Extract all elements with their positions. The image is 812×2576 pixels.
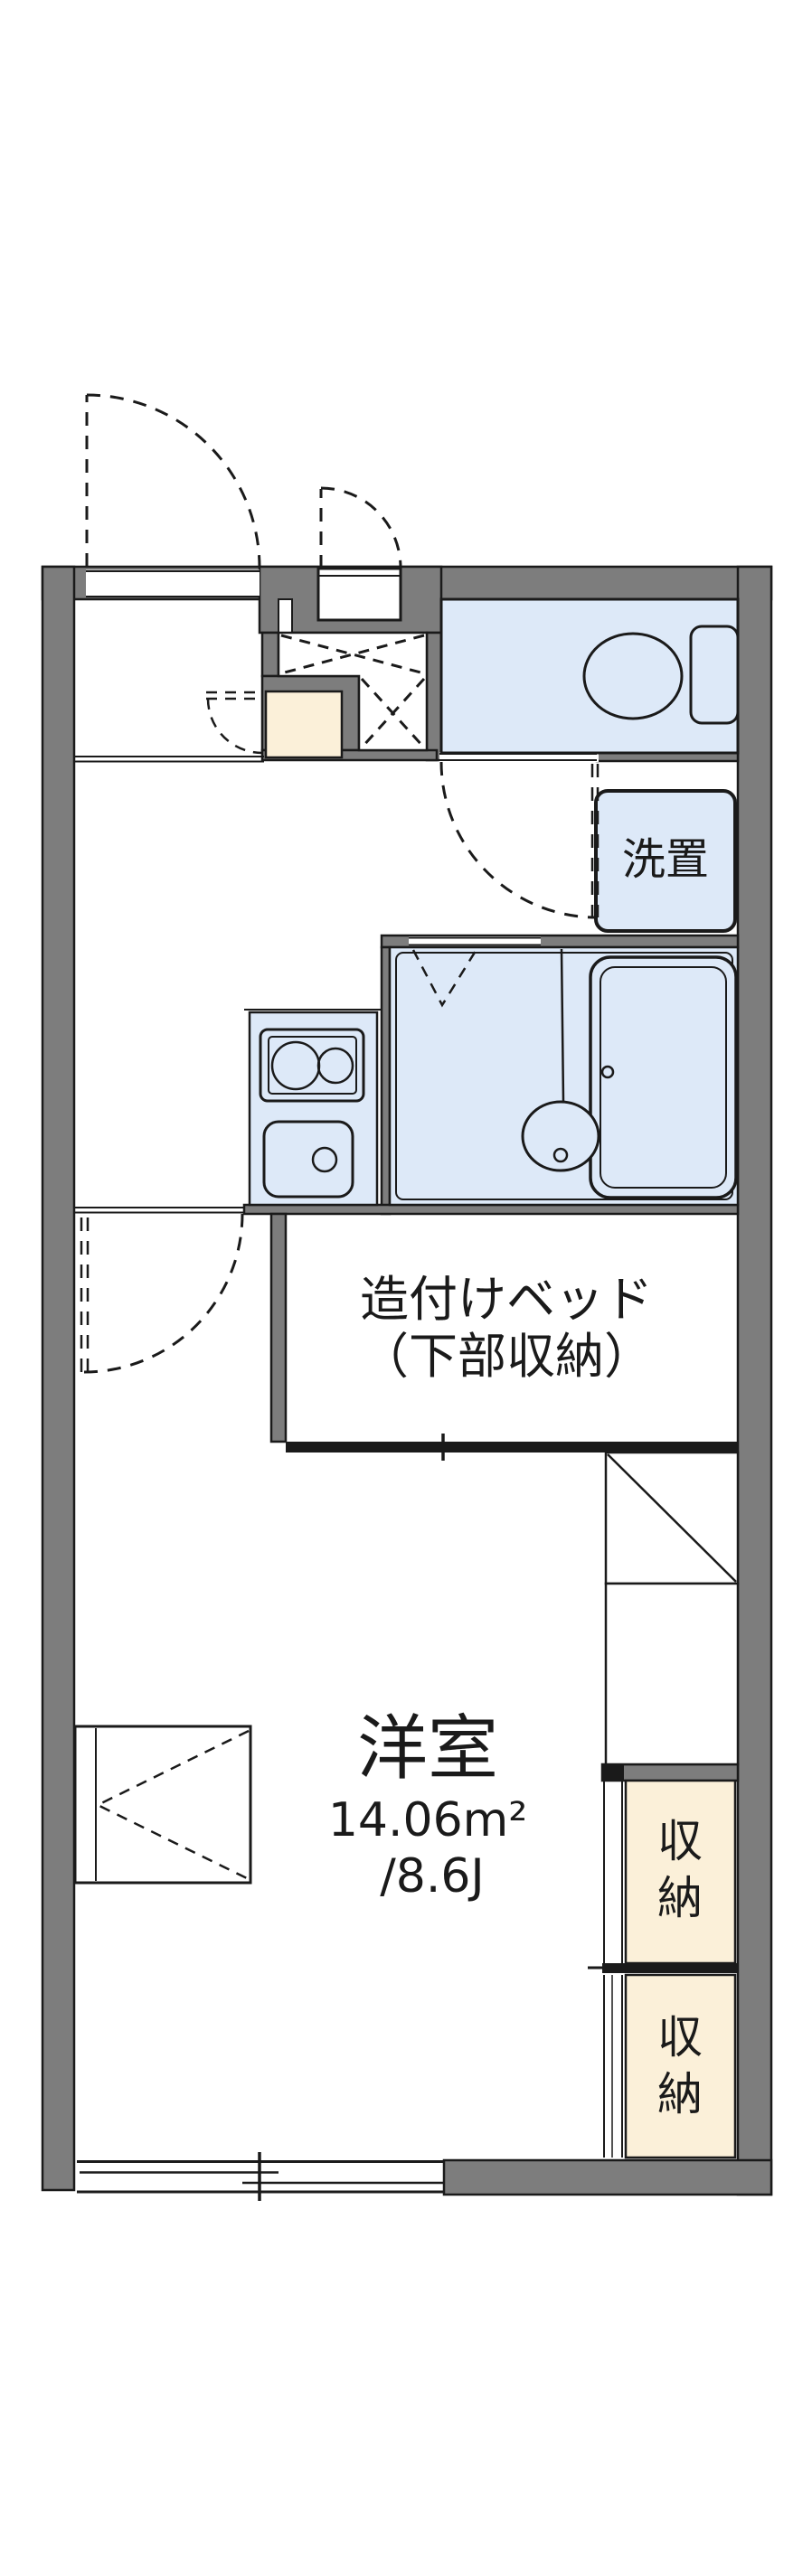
toilet-room <box>441 599 738 753</box>
wall-below-kitchen-bath <box>244 1205 738 1214</box>
door-swings <box>81 395 598 1372</box>
hall-small-door-arc <box>208 699 262 753</box>
storage-upper-label-2: 納 <box>657 1872 703 1924</box>
room-area-jo-label: /8.6J <box>380 1849 485 1904</box>
right-storage-column: 収 納 収 納 <box>588 1453 738 2158</box>
toilet-bowl <box>584 634 682 719</box>
wall-slot <box>279 599 292 634</box>
wall-genkan-left-strip <box>262 633 279 676</box>
bath-room <box>390 947 738 1205</box>
stove-unit <box>260 1029 364 1101</box>
room-area-m2-label: 14.06m² <box>328 1793 527 1847</box>
balcony-window <box>77 2152 444 2201</box>
entrance-door-arc <box>87 395 260 568</box>
bath-basin-drain <box>554 1149 567 1161</box>
floor-plan-page: 洗置 収 納 <box>0 0 812 2576</box>
wall-bed-bottom <box>286 1442 738 1453</box>
bed-label-line2: （下部収納） <box>360 1328 653 1385</box>
cabinet-body <box>75 1726 250 1883</box>
bathtub-faucet-dot <box>602 1067 613 1077</box>
wall-left <box>42 567 74 2190</box>
toilet-door-arc <box>441 762 597 917</box>
washstand-label: 洗置 <box>622 834 709 885</box>
wall-kitchen-bath <box>382 947 390 1214</box>
meter-box-door-arc <box>321 488 401 568</box>
storage-upper-label-1: 収 <box>657 1815 703 1867</box>
lower-open-shelf <box>606 1584 738 1764</box>
floor-plan-drawing: 洗置 収 納 <box>0 0 812 2576</box>
wall-toilet-left <box>427 633 441 760</box>
toilet-tank <box>691 626 738 723</box>
room-door-arc <box>84 1214 242 1372</box>
bed-label-line1: 造付けベッド <box>360 1271 653 1328</box>
room-name-label: 洋室 <box>357 1708 498 1790</box>
storage-lower-label-1: 収 <box>657 2011 703 2064</box>
storage-lower <box>626 1975 735 2158</box>
wall-right <box>738 567 771 2195</box>
shoe-cabinet <box>266 691 342 757</box>
wall-bottom <box>444 2160 771 2195</box>
wall-storage-column-post <box>602 1764 624 1781</box>
wall-bed-left <box>271 1214 286 1442</box>
bathtub <box>590 957 736 1198</box>
kitchen <box>244 1010 382 1205</box>
storage-lower-label-2: 納 <box>657 2068 703 2120</box>
left-wall-cabinet <box>75 1726 250 1883</box>
entrance-opening <box>86 570 260 597</box>
washroom: 洗置 <box>596 791 735 931</box>
